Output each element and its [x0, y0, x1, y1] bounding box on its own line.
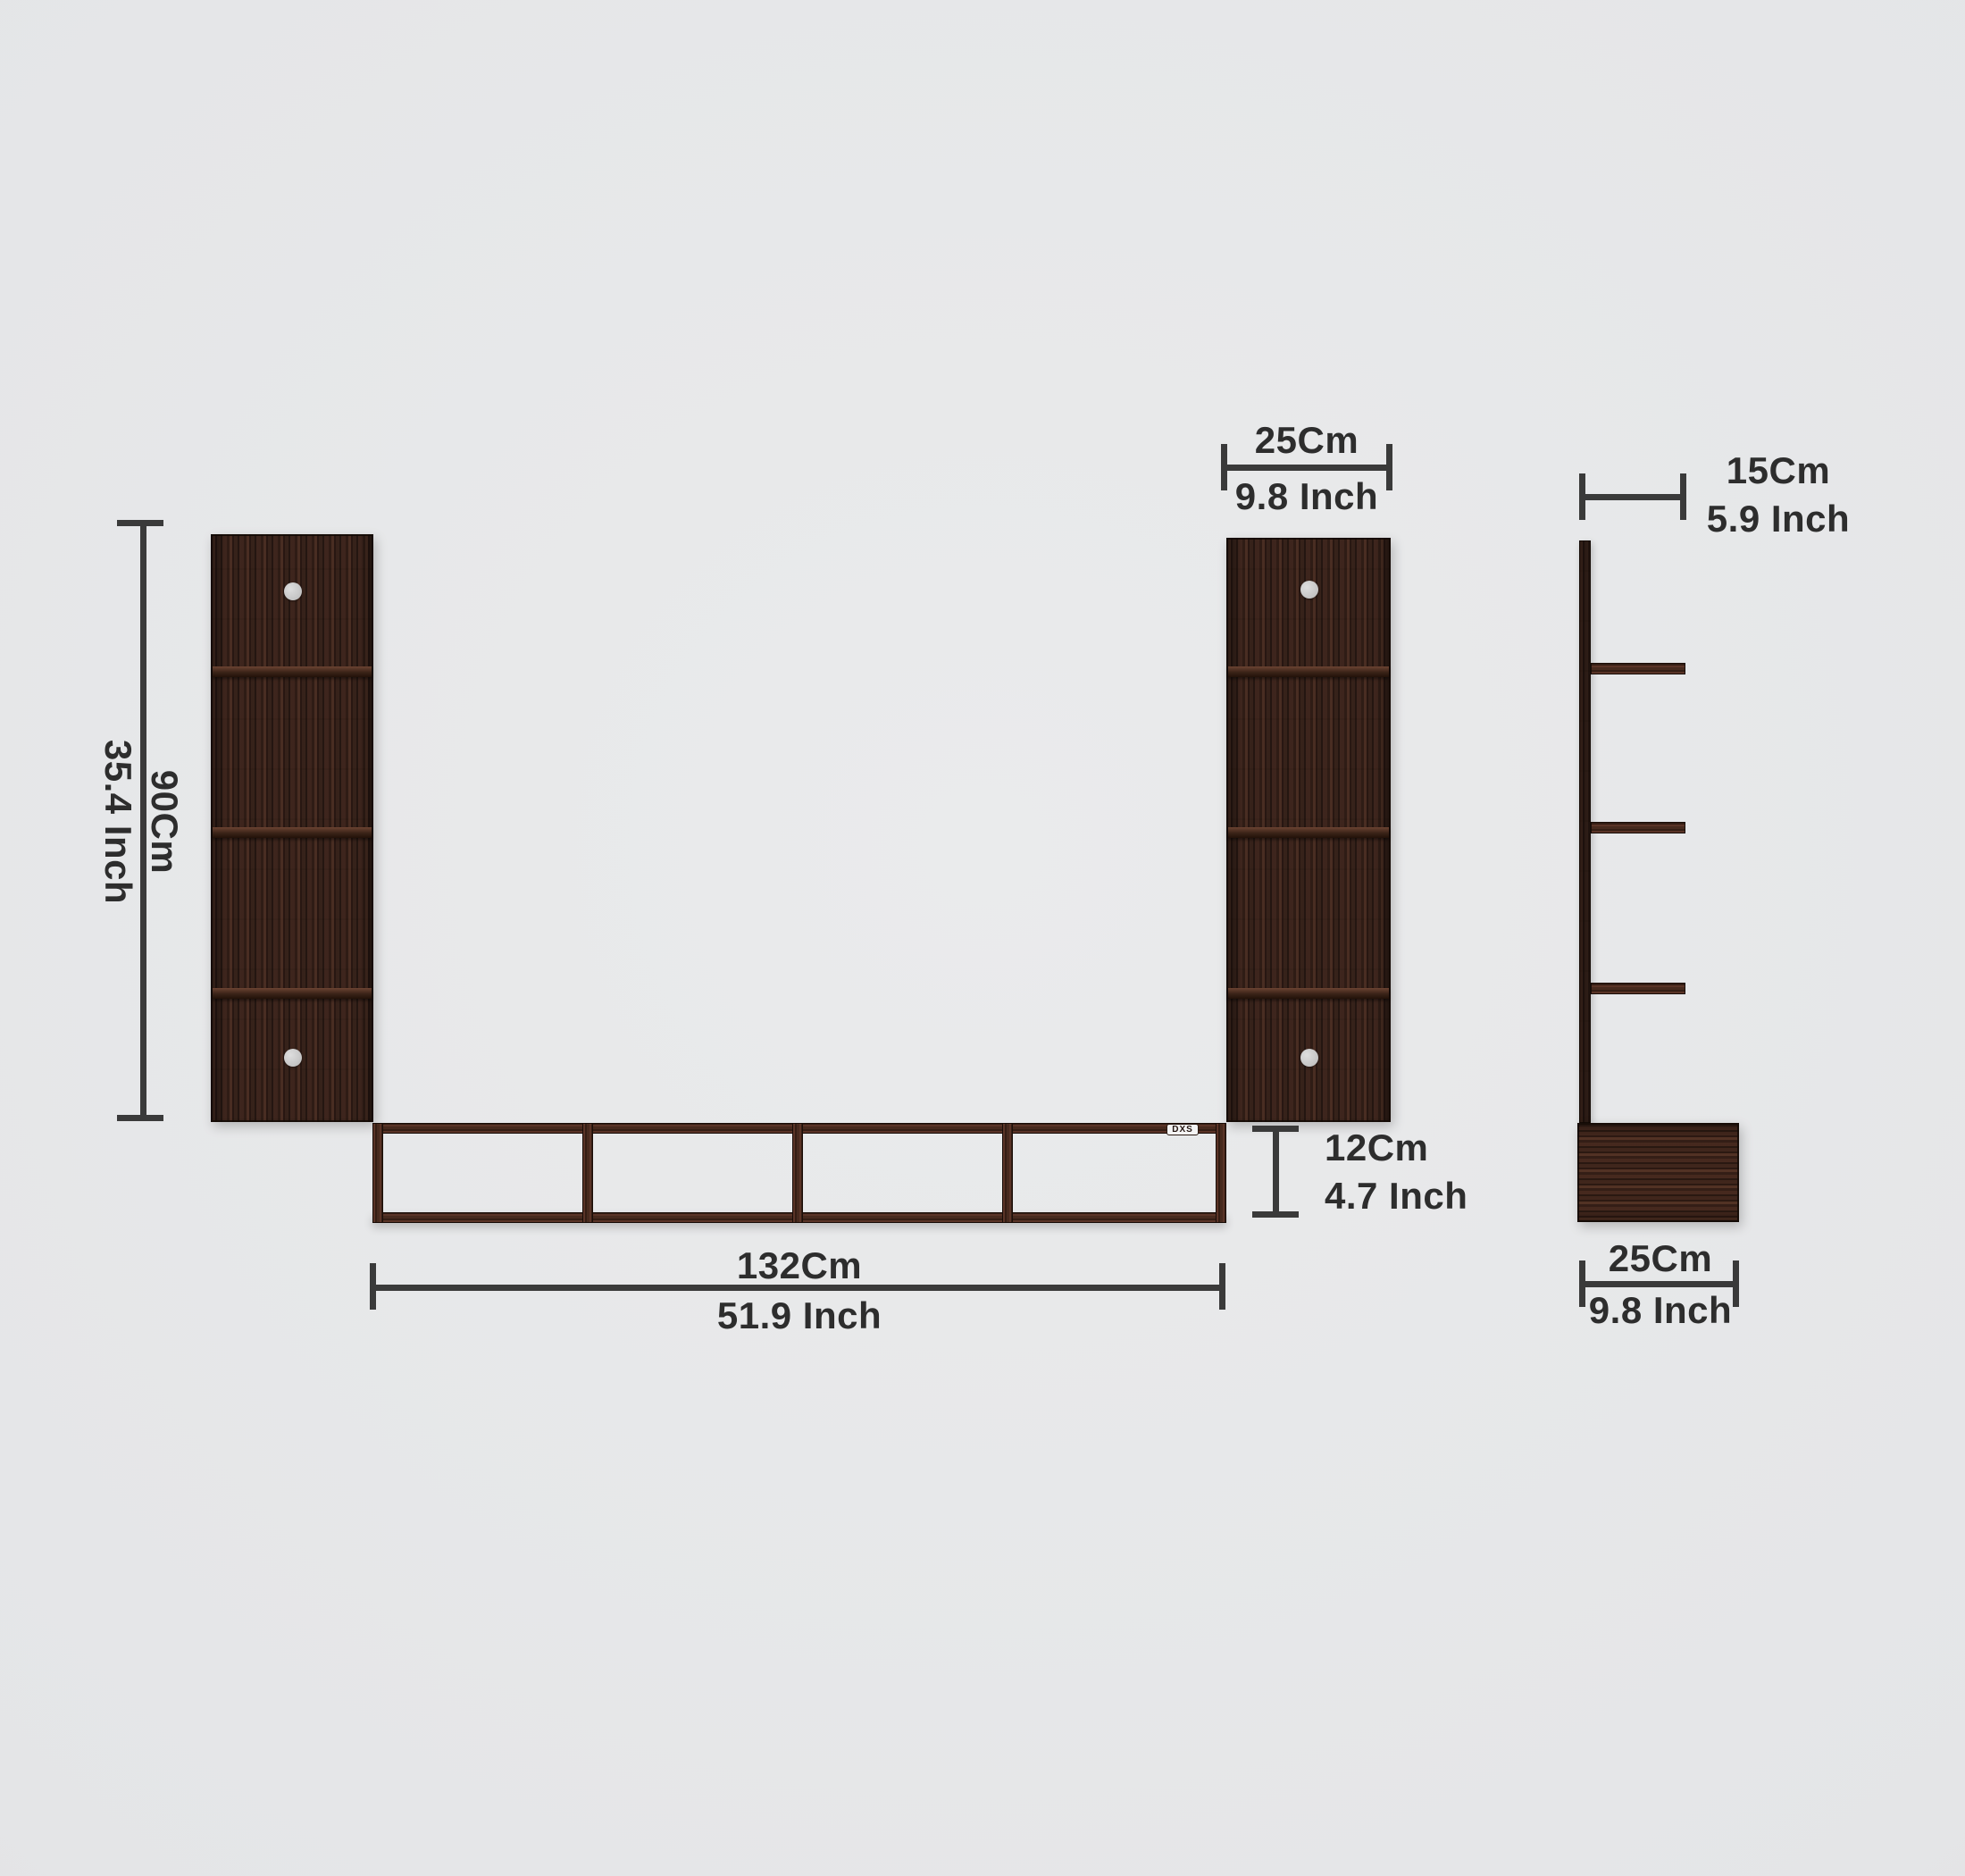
dim-side-depth-bottom-tick-left	[1579, 1260, 1585, 1307]
dim-side-depth-top-cm: 15Cm	[1727, 452, 1830, 490]
brand-logo-text: DXS	[1172, 1126, 1193, 1135]
dim-side-depth-bottom-cm: 25Cm	[1609, 1240, 1712, 1277]
dim-height-inch: 35.4 Inch	[99, 740, 137, 904]
dim-shelf-height-label: 12Cm 4.7 Inch	[1325, 1129, 1467, 1215]
left-panel-shelf-divider-1	[213, 666, 372, 677]
shelf-divider-1	[582, 1123, 593, 1223]
dim-side-depth-bottom-line	[1582, 1281, 1739, 1287]
dim-shelf-length-cm: 132Cm	[737, 1247, 862, 1285]
dim-height-tick-bottom	[117, 1115, 163, 1121]
dim-side-depth-bottom-tick-right	[1733, 1260, 1739, 1307]
dim-shelf-height-tick-top	[1252, 1126, 1299, 1132]
shelf-divider-3	[1002, 1123, 1013, 1223]
right-panel-shelf-divider-3	[1228, 988, 1389, 999]
right-panel-shelf-divider-1	[1228, 666, 1389, 677]
dim-height-label: 90Cm 35.4 Inch	[99, 740, 183, 904]
front-view-left-panel	[211, 534, 373, 1122]
shelf-divider-2	[792, 1123, 803, 1223]
left-panel-shelf-divider-3	[213, 988, 372, 999]
brand-logo: DXS	[1166, 1124, 1199, 1135]
dim-height-cm: 90Cm	[146, 740, 183, 904]
dim-panel-width-tick-left	[1221, 444, 1227, 490]
dim-side-depth-top-tick-right	[1680, 473, 1686, 520]
dim-side-depth-top-line	[1582, 494, 1686, 500]
side-view-shelf-stub-3	[1591, 983, 1685, 994]
dim-shelf-length-inch: 51.9 Inch	[717, 1297, 882, 1335]
left-panel-screw-hole-bottom	[284, 1049, 302, 1067]
dim-panel-width-line	[1224, 465, 1390, 471]
dim-panel-width-tick-right	[1386, 444, 1392, 490]
dim-shelf-length-tick-right	[1219, 1263, 1225, 1310]
dim-shelf-height-line	[1273, 1128, 1279, 1218]
front-view-bottom-shelf-frame: DXS	[372, 1123, 1226, 1223]
furniture-dimension-diagram: DXS 90Cm 35.4 Inch 25Cm 9.8 Inch 132Cm 5…	[0, 0, 1965, 1876]
dim-side-depth-top-label: 15Cm 5.9 Inch	[1707, 452, 1850, 538]
side-view-bottom-shelf	[1577, 1123, 1739, 1222]
side-view-back-panel	[1579, 540, 1591, 1123]
dim-side-depth-bottom-inch: 9.8 Inch	[1589, 1292, 1732, 1329]
right-panel-screw-hole-top	[1300, 581, 1318, 599]
side-view-shelf-stub-2	[1591, 822, 1685, 833]
dim-shelf-height-tick-bottom	[1252, 1211, 1299, 1218]
dim-shelf-length-tick-left	[370, 1263, 376, 1310]
dim-side-depth-top-inch: 5.9 Inch	[1707, 500, 1850, 538]
dim-side-depth-top-tick-left	[1579, 473, 1585, 520]
dim-shelf-height-cm: 12Cm	[1325, 1129, 1467, 1167]
dim-shelf-height-inch: 4.7 Inch	[1325, 1177, 1467, 1215]
left-panel-screw-hole-top	[284, 582, 302, 600]
dim-height-tick-top	[117, 520, 163, 526]
shelf-right-stile	[1216, 1123, 1226, 1223]
shelf-left-stile	[372, 1123, 383, 1223]
side-view-shelf-stub-1	[1591, 663, 1685, 674]
left-panel-shelf-divider-2	[213, 827, 372, 838]
front-view-right-panel	[1226, 538, 1391, 1122]
dim-panel-width-inch: 9.8 Inch	[1235, 478, 1378, 515]
right-panel-screw-hole-bottom	[1300, 1049, 1318, 1067]
right-panel-shelf-divider-2	[1228, 827, 1389, 838]
dim-panel-width-cm: 25Cm	[1255, 422, 1359, 459]
